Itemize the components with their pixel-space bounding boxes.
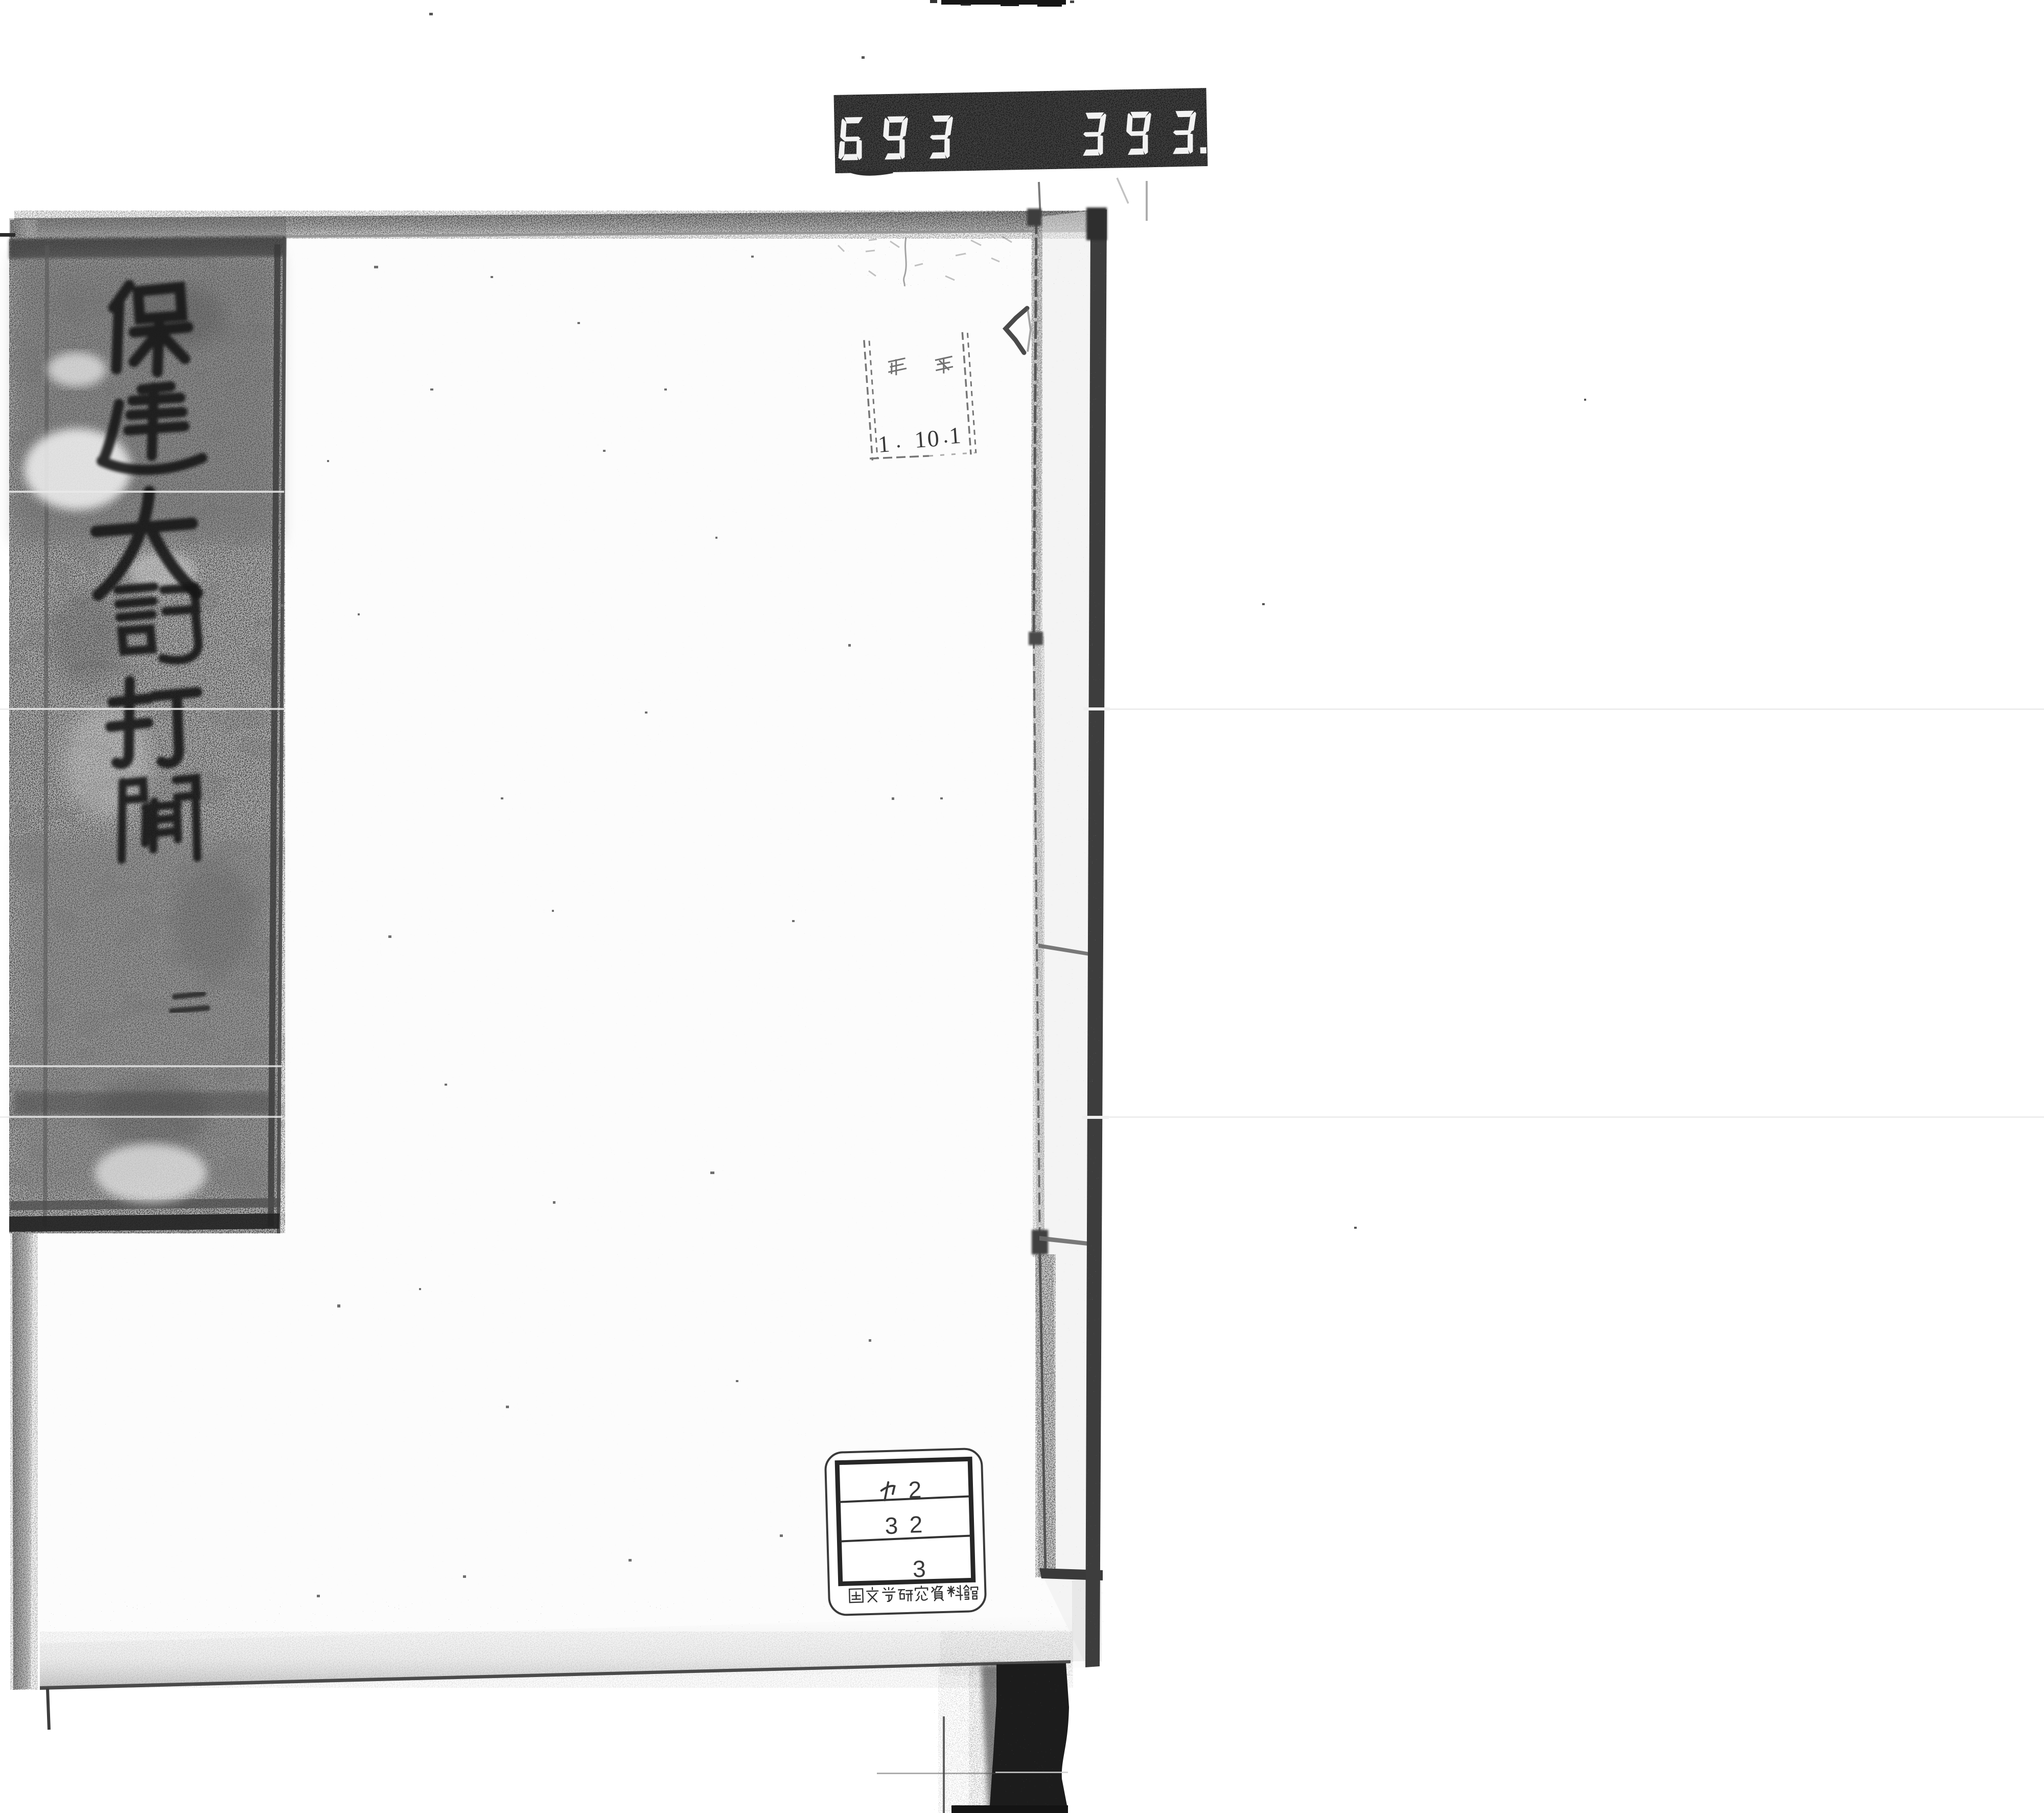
svg-text:3: 3 — [885, 1512, 898, 1539]
svg-text:1: 1 — [877, 430, 891, 457]
svg-text:2: 2 — [908, 1476, 922, 1503]
svg-text:3: 3 — [912, 1555, 926, 1582]
svg-text:2: 2 — [909, 1511, 923, 1538]
svg-text:1: 1 — [948, 422, 962, 449]
svg-text:10: 10 — [914, 425, 941, 452]
